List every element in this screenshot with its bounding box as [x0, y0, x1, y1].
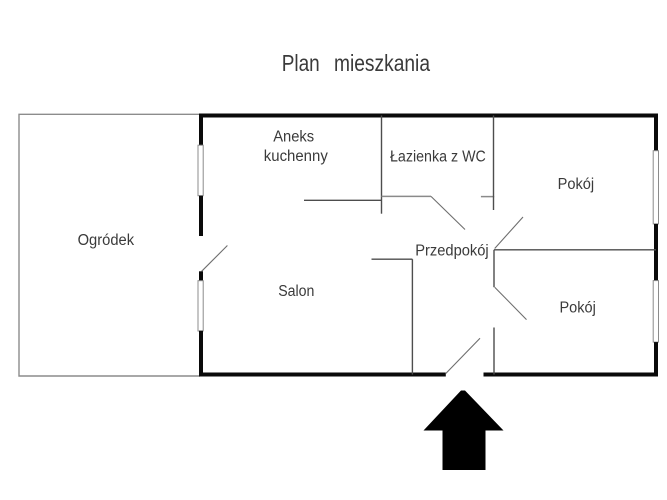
svg-text:kuchenny: kuchenny	[264, 148, 328, 165]
svg-text:Plan: Plan	[282, 50, 320, 76]
svg-text:Aneks: Aneks	[273, 129, 314, 146]
svg-text:Przedpokój: Przedpokój	[415, 243, 489, 260]
svg-text:Ogródek: Ogródek	[78, 232, 135, 249]
svg-text:Pokój: Pokój	[560, 300, 596, 317]
svg-text:Pokój: Pokój	[558, 176, 595, 193]
svg-text:mieszkania: mieszkania	[334, 50, 431, 76]
svg-text:Łazienka z WC: Łazienka z WC	[390, 149, 486, 166]
svg-text:Salon: Salon	[278, 283, 314, 300]
